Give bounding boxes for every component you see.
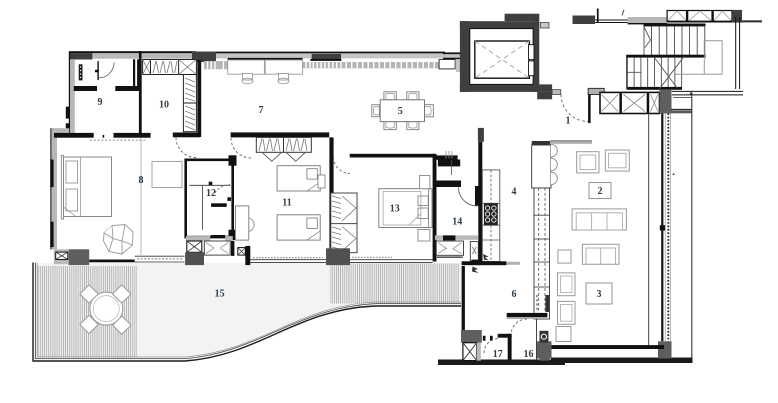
svg-text:6: 6 xyxy=(512,289,517,300)
svg-text:16: 16 xyxy=(524,349,534,360)
svg-text:3: 3 xyxy=(597,289,602,300)
svg-text:7: 7 xyxy=(259,105,264,116)
svg-text:4: 4 xyxy=(512,187,517,198)
svg-text:10: 10 xyxy=(159,99,169,110)
svg-text:14: 14 xyxy=(452,216,462,227)
svg-text:8: 8 xyxy=(139,175,144,186)
svg-text:15: 15 xyxy=(215,289,225,300)
svg-text:1: 1 xyxy=(566,116,571,127)
svg-text:17: 17 xyxy=(493,349,503,360)
svg-text:5: 5 xyxy=(398,106,403,117)
svg-text:11: 11 xyxy=(282,198,291,209)
svg-text:12: 12 xyxy=(206,188,216,199)
svg-text:2: 2 xyxy=(598,186,603,197)
svg-text:9: 9 xyxy=(98,97,103,108)
svg-text:13: 13 xyxy=(390,204,400,215)
